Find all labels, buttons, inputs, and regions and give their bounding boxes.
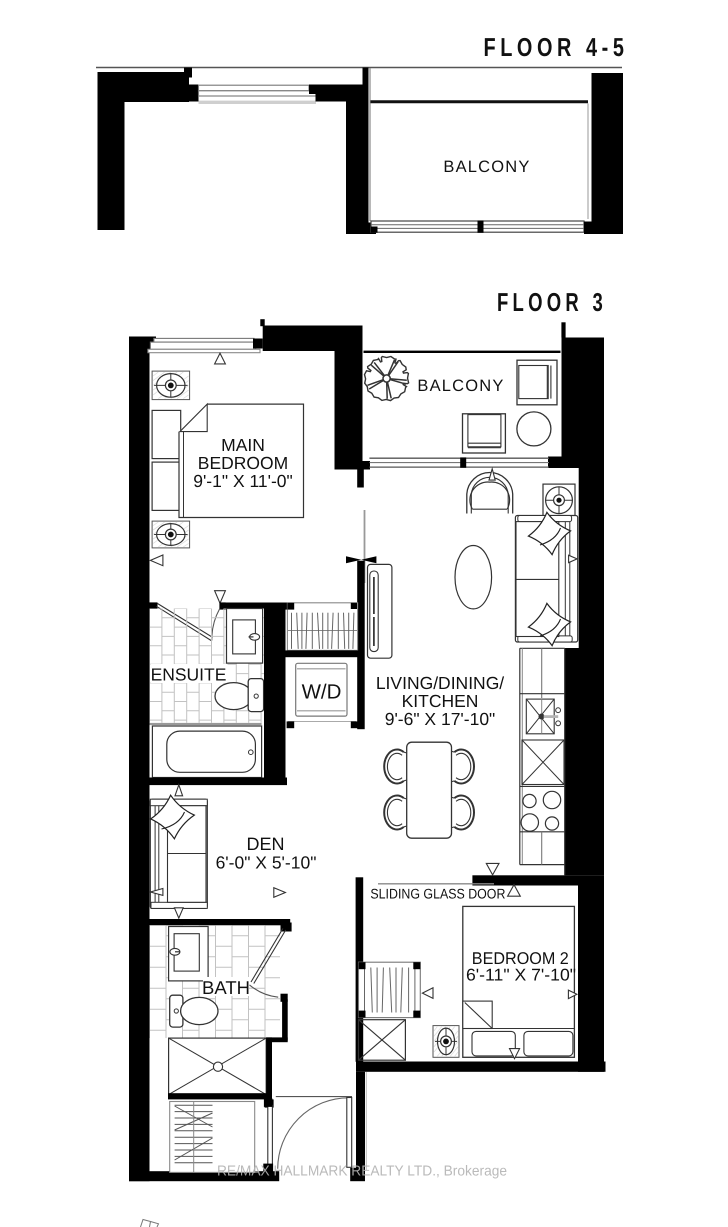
svg-text:W/D: W/D [302, 681, 342, 704]
svg-text:ENSUITE: ENSUITE [151, 665, 227, 685]
svg-text:KITCHEN: KITCHEN [402, 691, 479, 711]
svg-text:FLOOR 3: FLOOR 3 [497, 287, 607, 317]
svg-text:DEN: DEN [246, 834, 284, 854]
svg-text:BATH: BATH [202, 977, 250, 998]
svg-text:LIVING/DINING/: LIVING/DINING/ [376, 673, 504, 693]
svg-text:6'-11" X 7'-10": 6'-11" X 7'-10" [466, 966, 576, 985]
svg-text:BEDROOM: BEDROOM [198, 453, 288, 473]
svg-text:BALCONY: BALCONY [417, 377, 504, 395]
svg-text:FLOOR 4-5: FLOOR 4-5 [484, 32, 629, 62]
svg-text:9'-6" X 17'-10": 9'-6" X 17'-10" [385, 709, 496, 729]
svg-text:9'-1" X 11'-0": 9'-1" X 11'-0" [193, 471, 293, 491]
svg-text:MAIN: MAIN [221, 435, 265, 455]
svg-text:RE/MAX HALLMARK REALTY LTD., B: RE/MAX HALLMARK REALTY LTD., Brokerage [217, 1164, 507, 1180]
svg-text:BALCONY: BALCONY [443, 158, 530, 176]
svg-text:SLIDING GLASS DOOR: SLIDING GLASS DOOR [370, 886, 505, 902]
svg-text:6'-0" X 5'-10": 6'-0" X 5'-10" [216, 853, 317, 873]
